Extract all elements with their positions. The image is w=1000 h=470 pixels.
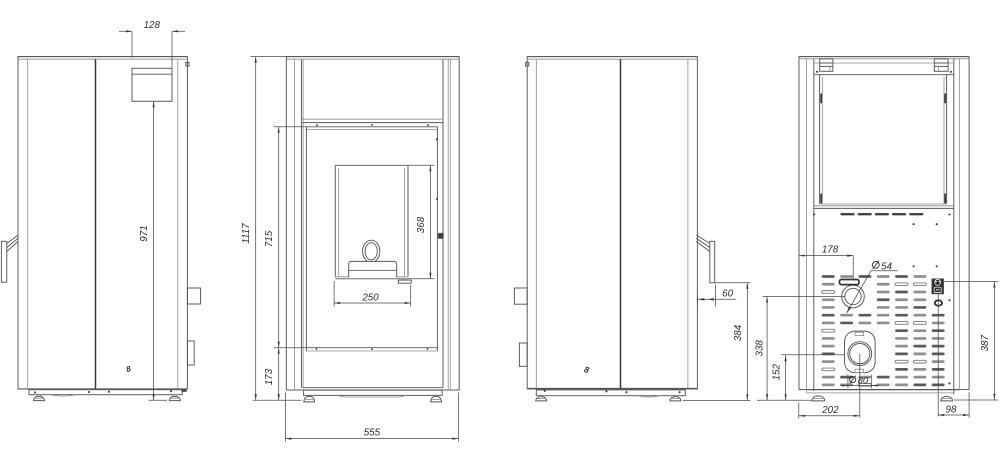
svg-text:971: 971	[139, 225, 150, 241]
svg-text:368: 368	[416, 216, 427, 233]
svg-text:715: 715	[264, 230, 275, 247]
svg-text:80: 80	[858, 376, 869, 387]
svg-text:202: 202	[821, 405, 839, 416]
svg-text:1117: 1117	[241, 223, 252, 244]
svg-text:387: 387	[980, 334, 991, 351]
svg-text:60: 60	[722, 288, 733, 299]
svg-text:338: 338	[755, 340, 766, 357]
svg-text:384: 384	[733, 324, 744, 341]
svg-text:54: 54	[881, 261, 893, 272]
svg-text:128: 128	[144, 20, 161, 31]
svg-text:98: 98	[946, 405, 957, 416]
svg-text:152: 152	[772, 363, 783, 380]
svg-text:555: 555	[364, 427, 381, 438]
svg-text:250: 250	[361, 292, 379, 303]
svg-text:173: 173	[264, 368, 275, 385]
svg-text:178: 178	[822, 245, 839, 256]
